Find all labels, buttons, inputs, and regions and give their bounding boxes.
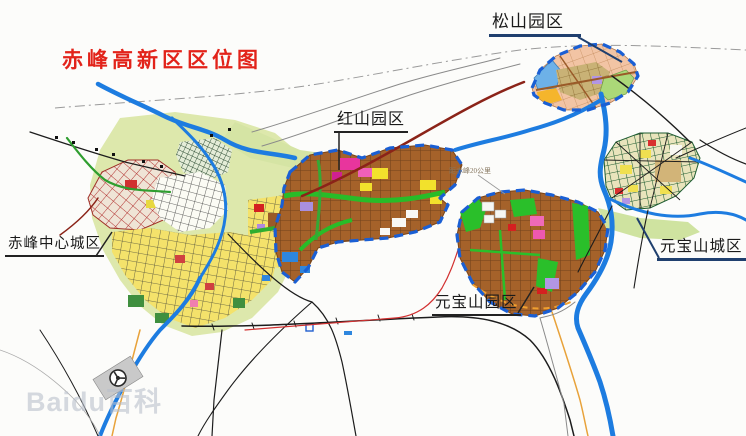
label-songshan-park: 松山园区	[489, 12, 581, 37]
label-hongshan-park: 红山园区	[334, 111, 408, 133]
label-distance-note: 距赤峰20公里	[449, 166, 491, 176]
label-yuanbaoshan-park: 元宝山园区	[432, 294, 521, 316]
label-yuanbaoshan-city: 元宝山城区	[657, 238, 746, 261]
baidu-baike-watermark: Baidu百科	[26, 380, 162, 419]
map-canvas: 赤峰高新区区位图 松山园区 红山园区 赤峰中心城区 元宝山园区 元宝山城区 距赤…	[0, 0, 746, 436]
map-title: 赤峰高新区区位图	[62, 44, 262, 74]
label-chifeng-central-city: 赤峰中心城区	[5, 236, 104, 257]
